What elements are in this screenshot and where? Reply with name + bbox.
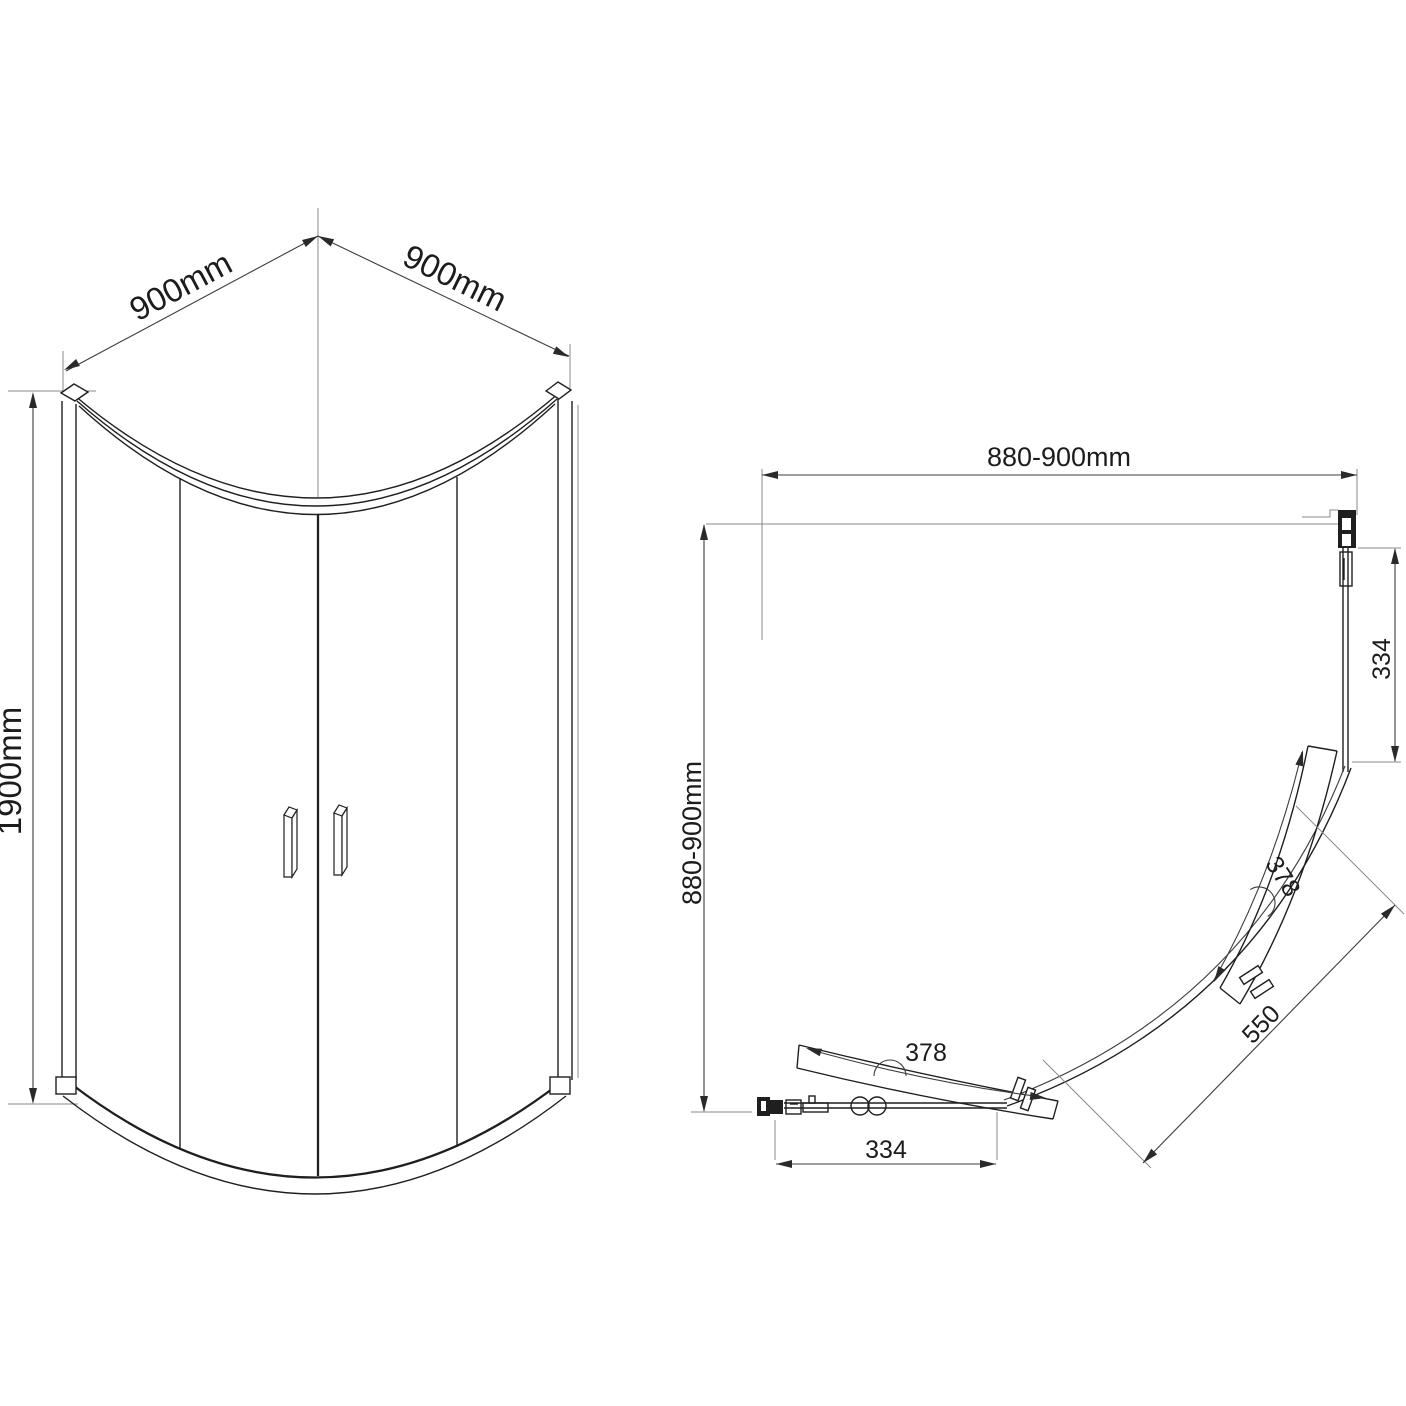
front-top-rail [74, 393, 559, 515]
front-top-right-corner-profile [546, 382, 571, 399]
plan-dim-depth-left: 880-900mm [677, 524, 752, 1112]
plan-opening-label: 550 [1237, 1000, 1286, 1049]
plan-lower-door: 378 [797, 1039, 1058, 1119]
front-dim-width-right: 900mm [318, 236, 570, 390]
front-right-door-handle [334, 805, 347, 875]
plan-fixed-bottom-label: 334 [865, 1136, 907, 1164]
roller-wheel [851, 1097, 869, 1115]
front-left-wall-profile [62, 401, 76, 1082]
front-left-door-handle [284, 807, 297, 877]
front-dim-width-left: 900mm [63, 236, 318, 391]
front-bottom-rail [56, 1077, 570, 1194]
plan-dim-width-top: 880-900mm [762, 442, 1357, 640]
plan-view: 880-900mm 880-900mm [677, 442, 1404, 1168]
shower-enclosure-technical-drawing: 900mm 900mm 1900mm [0, 0, 1406, 1406]
front-dim-height: 1900mm [0, 391, 96, 1104]
plan-bottom-left-wall-profile [757, 1096, 828, 1116]
front-top-left-corner-profile [61, 384, 88, 401]
plan-dim-opening: 550 [1043, 806, 1404, 1168]
front-right-wall-profile [558, 399, 578, 1082]
plan-dim-fixed-bottom: 334 [775, 1112, 997, 1168]
plan-depth-left-label: 880-900mm [677, 761, 707, 905]
plan-curved-track [1004, 766, 1351, 1106]
front-width-right-label: 900mm [397, 237, 512, 318]
front-height-label: 1900mm [0, 707, 28, 835]
plan-dim-fixed-right: 334 [1352, 548, 1401, 762]
front-width-left-label: 900mm [123, 244, 238, 328]
plan-lower-door-label: 378 [905, 1039, 947, 1067]
plan-upper-door: 378 [1214, 746, 1337, 1004]
front-elevation-view: 900mm 900mm 1900mm [0, 208, 578, 1194]
roller-wheel [868, 1097, 886, 1115]
plan-upper-door-label: 378 [1260, 852, 1306, 902]
plan-width-top-label: 880-900mm [987, 442, 1131, 472]
plan-fixed-right-label: 334 [1368, 638, 1396, 680]
arc-length-symbol [874, 1060, 906, 1076]
